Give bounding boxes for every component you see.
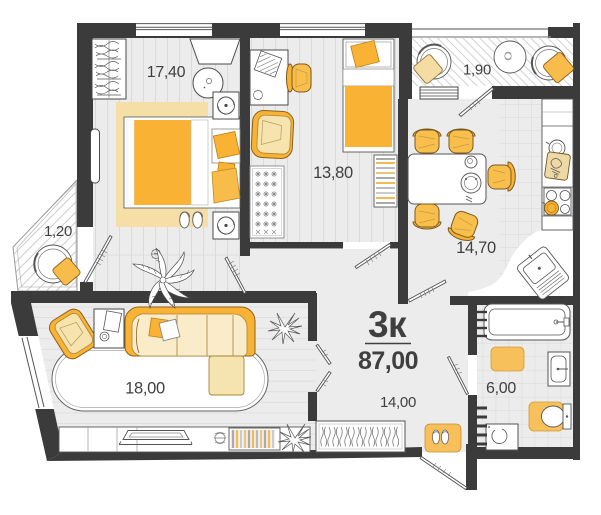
svg-text:17,40: 17,40 (147, 64, 186, 81)
svg-text:1,90: 1,90 (463, 62, 491, 79)
svg-text:1,20: 1,20 (44, 223, 72, 240)
svg-text:14,00: 14,00 (380, 394, 416, 411)
svg-text:87,00: 87,00 (358, 347, 418, 375)
svg-text:13,80: 13,80 (313, 164, 353, 182)
svg-text:18,00: 18,00 (125, 380, 165, 398)
svg-text:3к: 3к (368, 304, 407, 345)
svg-text:14,70: 14,70 (456, 239, 496, 257)
svg-text:6,00: 6,00 (486, 380, 516, 397)
